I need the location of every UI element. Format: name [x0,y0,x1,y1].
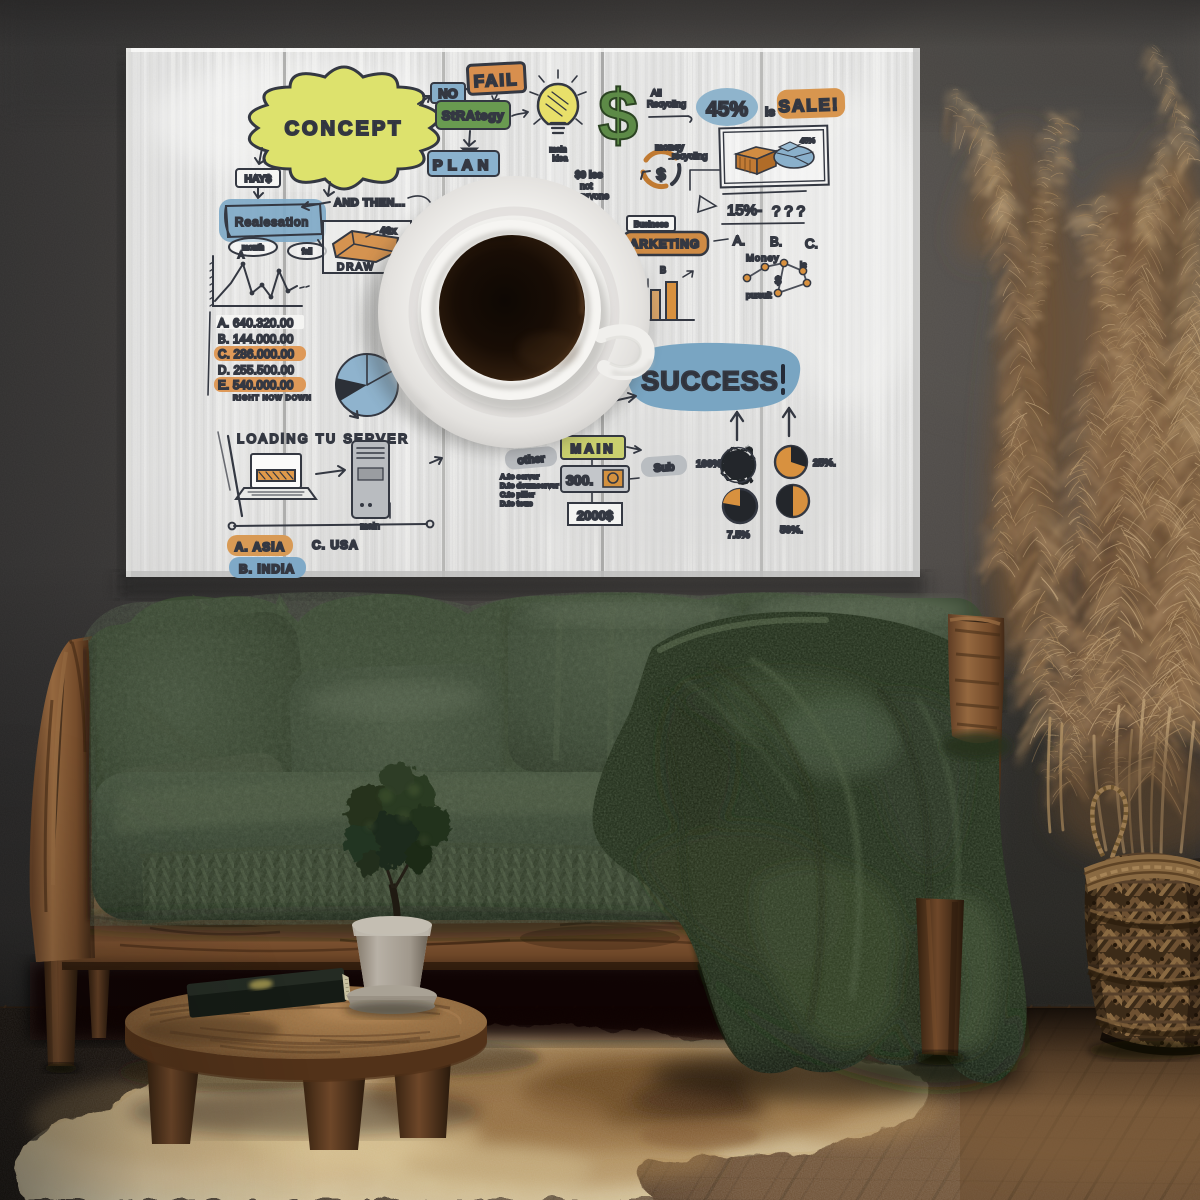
svg-text:main: main [360,521,380,531]
svg-text:D.to downserver: D.to downserver [500,481,559,490]
svg-text:Realesation: Realesation [235,215,309,229]
svg-text:Recycling: Recycling [647,99,686,109]
svg-text:15%-: 15%- [727,202,762,219]
svg-text:A.: A. [733,233,745,248]
svg-text:B.: B. [770,234,782,249]
svg-text:AND THEN...: AND THEN... [334,197,406,209]
svg-text:$: $ [656,165,666,184]
svg-text:month: month [242,243,264,252]
svg-text:HAY$: HAY$ [244,173,271,185]
svg-text:A: A [238,250,244,260]
svg-text:2000$: 2000$ [577,508,614,523]
svg-text:fail: fail [302,247,312,256]
svg-text:idea: idea [552,154,568,163]
svg-text:D. 255.500.00: D. 255.500.00 [218,365,294,377]
svg-text:SALE!: SALE! [778,95,840,116]
svg-text:B: B [660,265,666,275]
svg-text:A. ASiA: A. ASiA [235,540,286,554]
svg-text:7.5%: 7.5% [727,530,750,541]
svg-text:recycling: recycling [672,151,708,161]
svg-text:B. 144.000.00: B. 144.000.00 [218,334,294,346]
svg-text:main: main [549,145,566,154]
svg-text:C. 286.000.00: C. 286.000.00 [218,349,294,361]
svg-text:FAIL: FAIL [473,70,519,91]
svg-text:E. 540.000.00: E. 540.000.00 [218,380,294,392]
svg-text:DRAW: DRAW [337,262,375,273]
svg-text:$: $ [598,76,638,156]
svg-text:25%.: 25%. [813,458,836,469]
svg-text:SUCCESS: SUCCESS [641,366,779,396]
svg-text:RIGHT NOW DOWN: RIGHT NOW DOWN [233,395,312,402]
svg-text:Sub: Sub [653,461,675,474]
svg-text:C. USA: C. USA [312,538,359,552]
svg-text:C.to piller: C.to piller [500,490,535,499]
svg-text:Business: Business [634,219,669,229]
svg-text:50%.: 50%. [780,525,803,536]
svg-text:300.: 300. [566,472,593,488]
svg-text:100%: 100% [696,459,722,470]
svg-text:$0 les: $0 les [575,170,603,181]
svg-text:NO: NO [438,86,458,101]
svg-text:D.to tous: D.to tous [500,499,533,508]
svg-text:PLAN: PLAN [433,157,494,174]
svg-text:ARKETiNG: ARKETiNG [630,237,700,251]
svg-text:not: not [580,181,593,191]
svg-text:A. 640.320.00: A. 640.320.00 [218,318,294,330]
svg-text:CONCEPT: CONCEPT [285,118,404,140]
svg-text:C.: C. [805,236,818,251]
svg-text:46x: 46x [380,226,397,237]
svg-text:is: is [765,105,775,119]
svg-text:Money: Money [746,253,780,264]
svg-text:$: $ [775,275,781,287]
svg-text:A.to server: A.to server [500,472,539,481]
svg-text:All: All [651,88,662,99]
svg-text:StRAtegy: StRAtegy [442,108,505,123]
svg-text:pursuit: pursuit [746,290,772,300]
svg-text:MAIN: MAIN [570,441,615,456]
svg-text:???: ??? [772,203,809,220]
svg-text:45%: 45% [706,98,748,121]
svg-text:other: other [517,453,546,467]
